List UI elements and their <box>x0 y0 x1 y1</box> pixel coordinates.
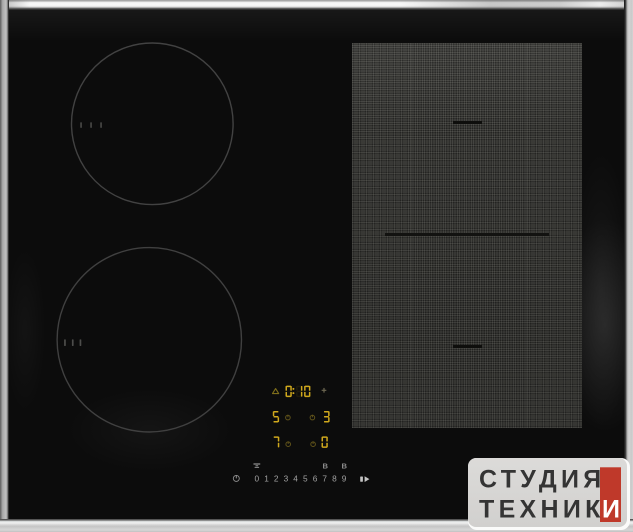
svg-text:ТЕХНИК: ТЕХНИК <box>479 496 605 524</box>
svg-text:И: И <box>602 496 620 524</box>
svg-text:СТУДИЯ: СТУДИЯ <box>479 466 606 494</box>
